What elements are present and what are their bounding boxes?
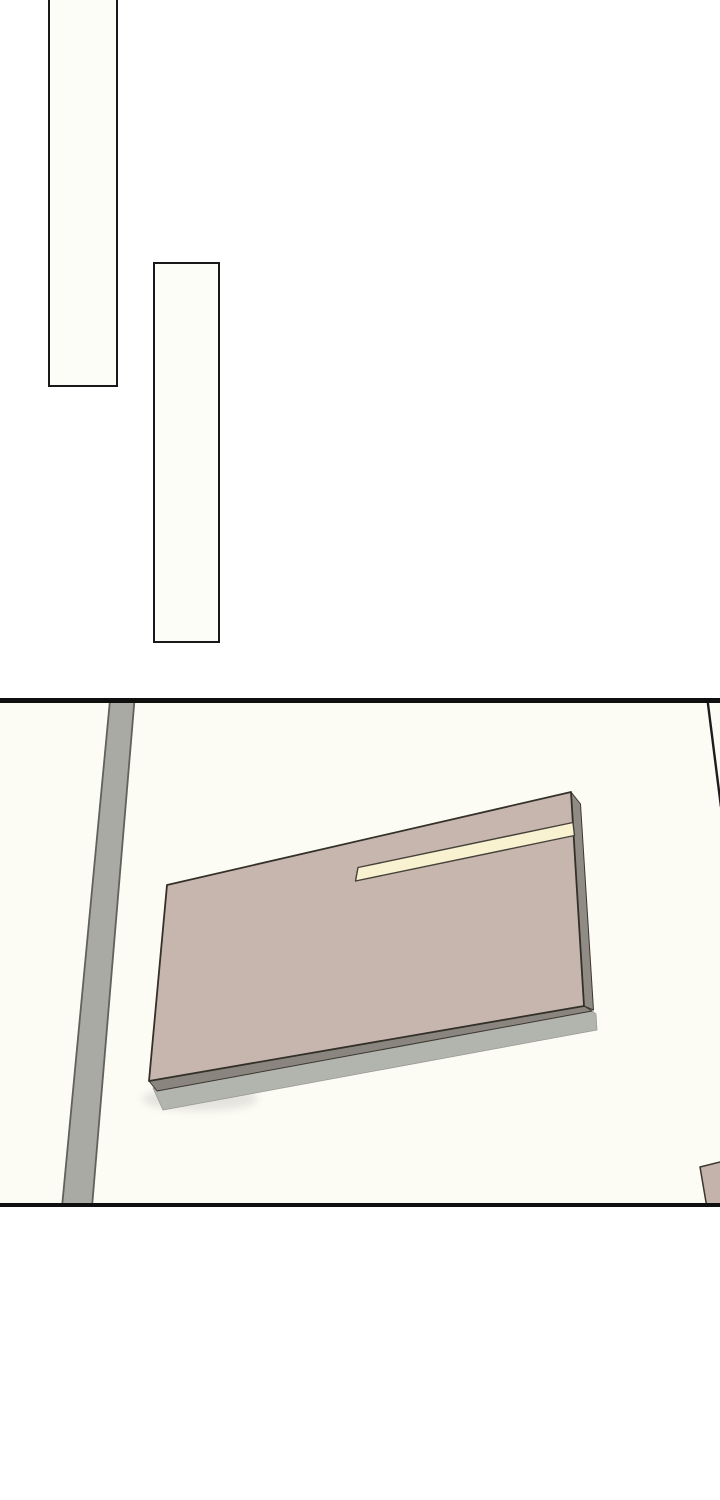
scene-panel (0, 698, 720, 1207)
empty-vertical-panel-1 (48, 0, 118, 387)
empty-vertical-panel-2 (153, 262, 220, 643)
road-strip (62, 703, 135, 1203)
scene-illustration (0, 703, 720, 1203)
adjacent-panel-edge-line (708, 703, 720, 807)
corner-object (700, 1162, 720, 1204)
